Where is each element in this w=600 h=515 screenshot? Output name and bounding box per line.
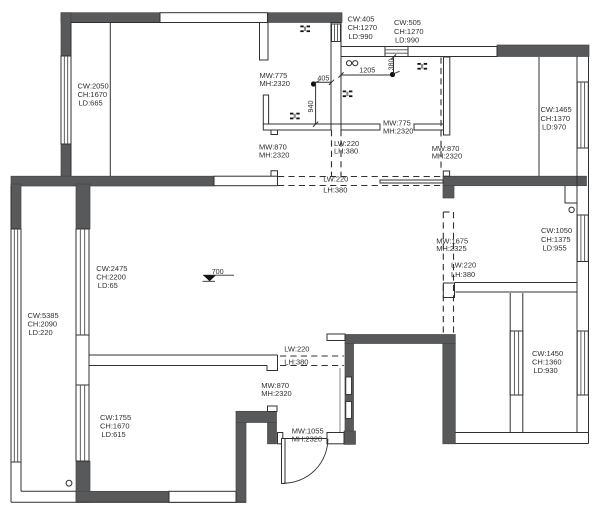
svg-text:LD:930: LD:930 [534, 366, 558, 375]
svg-text:MH:2325: MH:2325 [436, 244, 466, 253]
svg-text:LD:220: LD:220 [29, 328, 53, 337]
svg-text:MH:2320: MH:2320 [259, 150, 289, 159]
svg-text:LD:955: LD:955 [543, 243, 567, 252]
svg-text:MH:2320: MH:2320 [432, 152, 462, 161]
svg-text:940: 940 [306, 101, 315, 113]
svg-text:LH:380: LH:380 [323, 185, 347, 194]
svg-text:LW:220: LW:220 [451, 261, 476, 270]
svg-text:MH:2320: MH:2320 [261, 389, 291, 398]
svg-text:LW:220: LW:220 [323, 175, 348, 184]
svg-text:LD:65: LD:65 [98, 281, 118, 290]
svg-text:LH:380: LH:380 [334, 147, 358, 156]
svg-text:LD:970: LD:970 [542, 122, 566, 131]
svg-text:MH:2320: MH:2320 [383, 126, 413, 135]
svg-text:LD:665: LD:665 [79, 99, 103, 108]
svg-text:MH:2320: MH:2320 [260, 79, 290, 88]
svg-text:700: 700 [212, 267, 224, 276]
svg-text:380: 380 [387, 58, 396, 70]
svg-text:LD:990: LD:990 [349, 32, 373, 41]
svg-text:LW:220: LW:220 [284, 345, 309, 354]
svg-text:LH:380: LH:380 [451, 270, 475, 279]
svg-text:1205: 1205 [359, 65, 375, 74]
svg-text:LD:615: LD:615 [102, 430, 126, 439]
svg-text:405: 405 [317, 73, 329, 82]
svg-text:MH:2320: MH:2320 [292, 435, 322, 444]
svg-text:LD:990: LD:990 [395, 35, 419, 44]
svg-text:LH:380: LH:380 [284, 357, 308, 366]
